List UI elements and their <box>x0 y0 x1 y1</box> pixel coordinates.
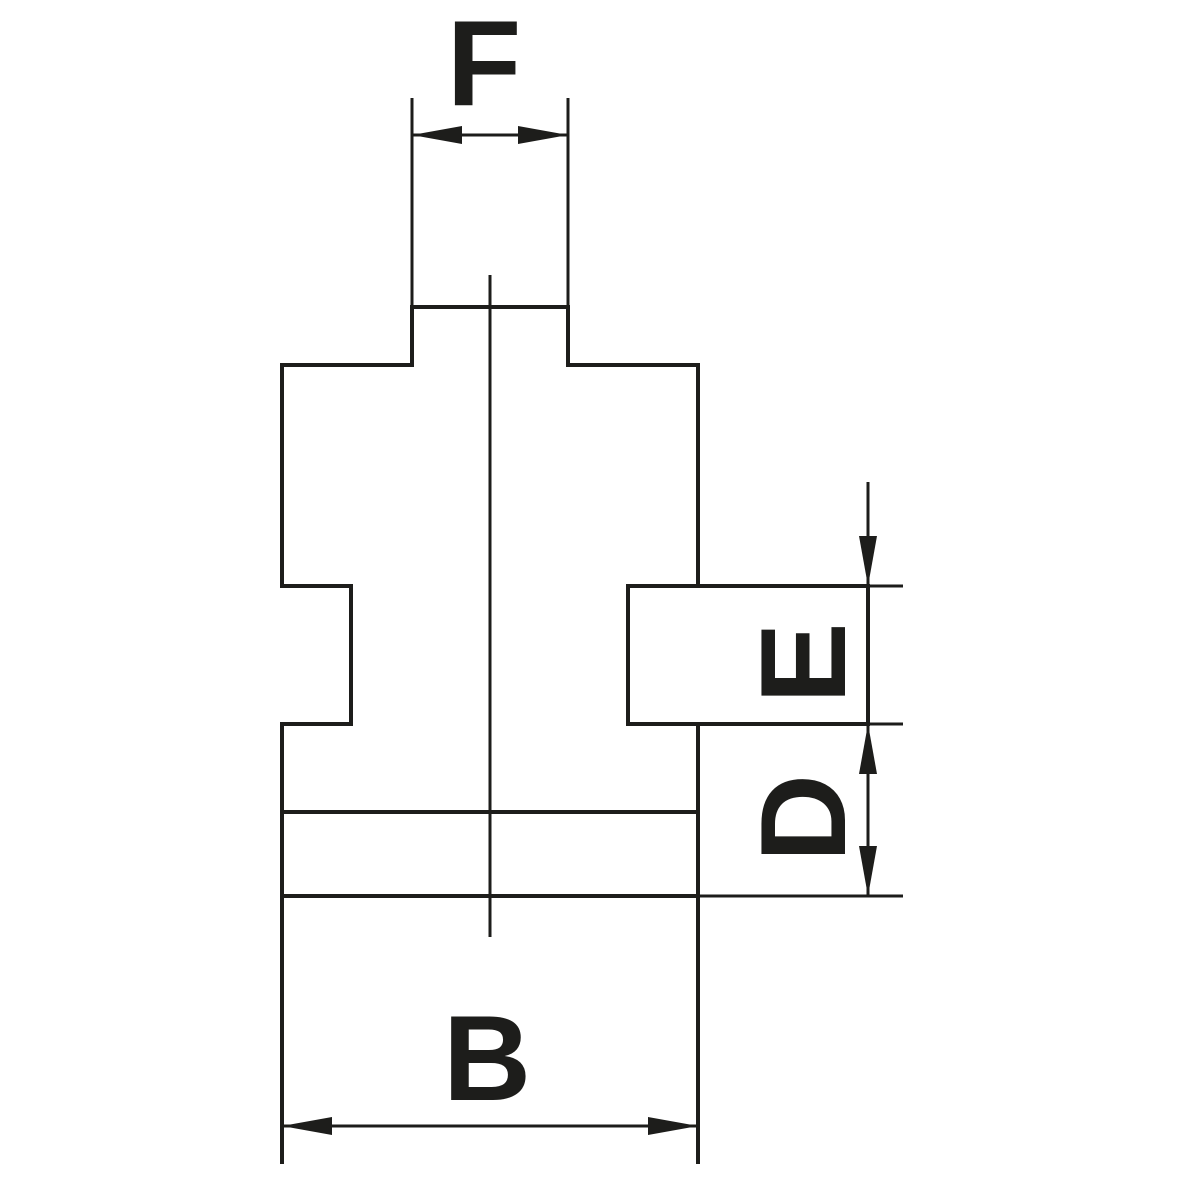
ed-arrow-middle <box>859 724 877 774</box>
dim-label-b: B <box>443 990 531 1126</box>
drawing-canvas: FEDB <box>0 0 1200 1200</box>
dim-label-f: F <box>447 0 522 131</box>
e-arrow-top <box>859 536 877 586</box>
f-arrow-right <box>518 126 568 144</box>
dim-label-e: E <box>735 622 871 703</box>
dim-label-d: D <box>735 774 871 862</box>
b-arrow-left <box>282 1117 332 1135</box>
dimension-drawing: FEDB <box>0 0 1200 1200</box>
b-arrow-right <box>648 1117 698 1135</box>
